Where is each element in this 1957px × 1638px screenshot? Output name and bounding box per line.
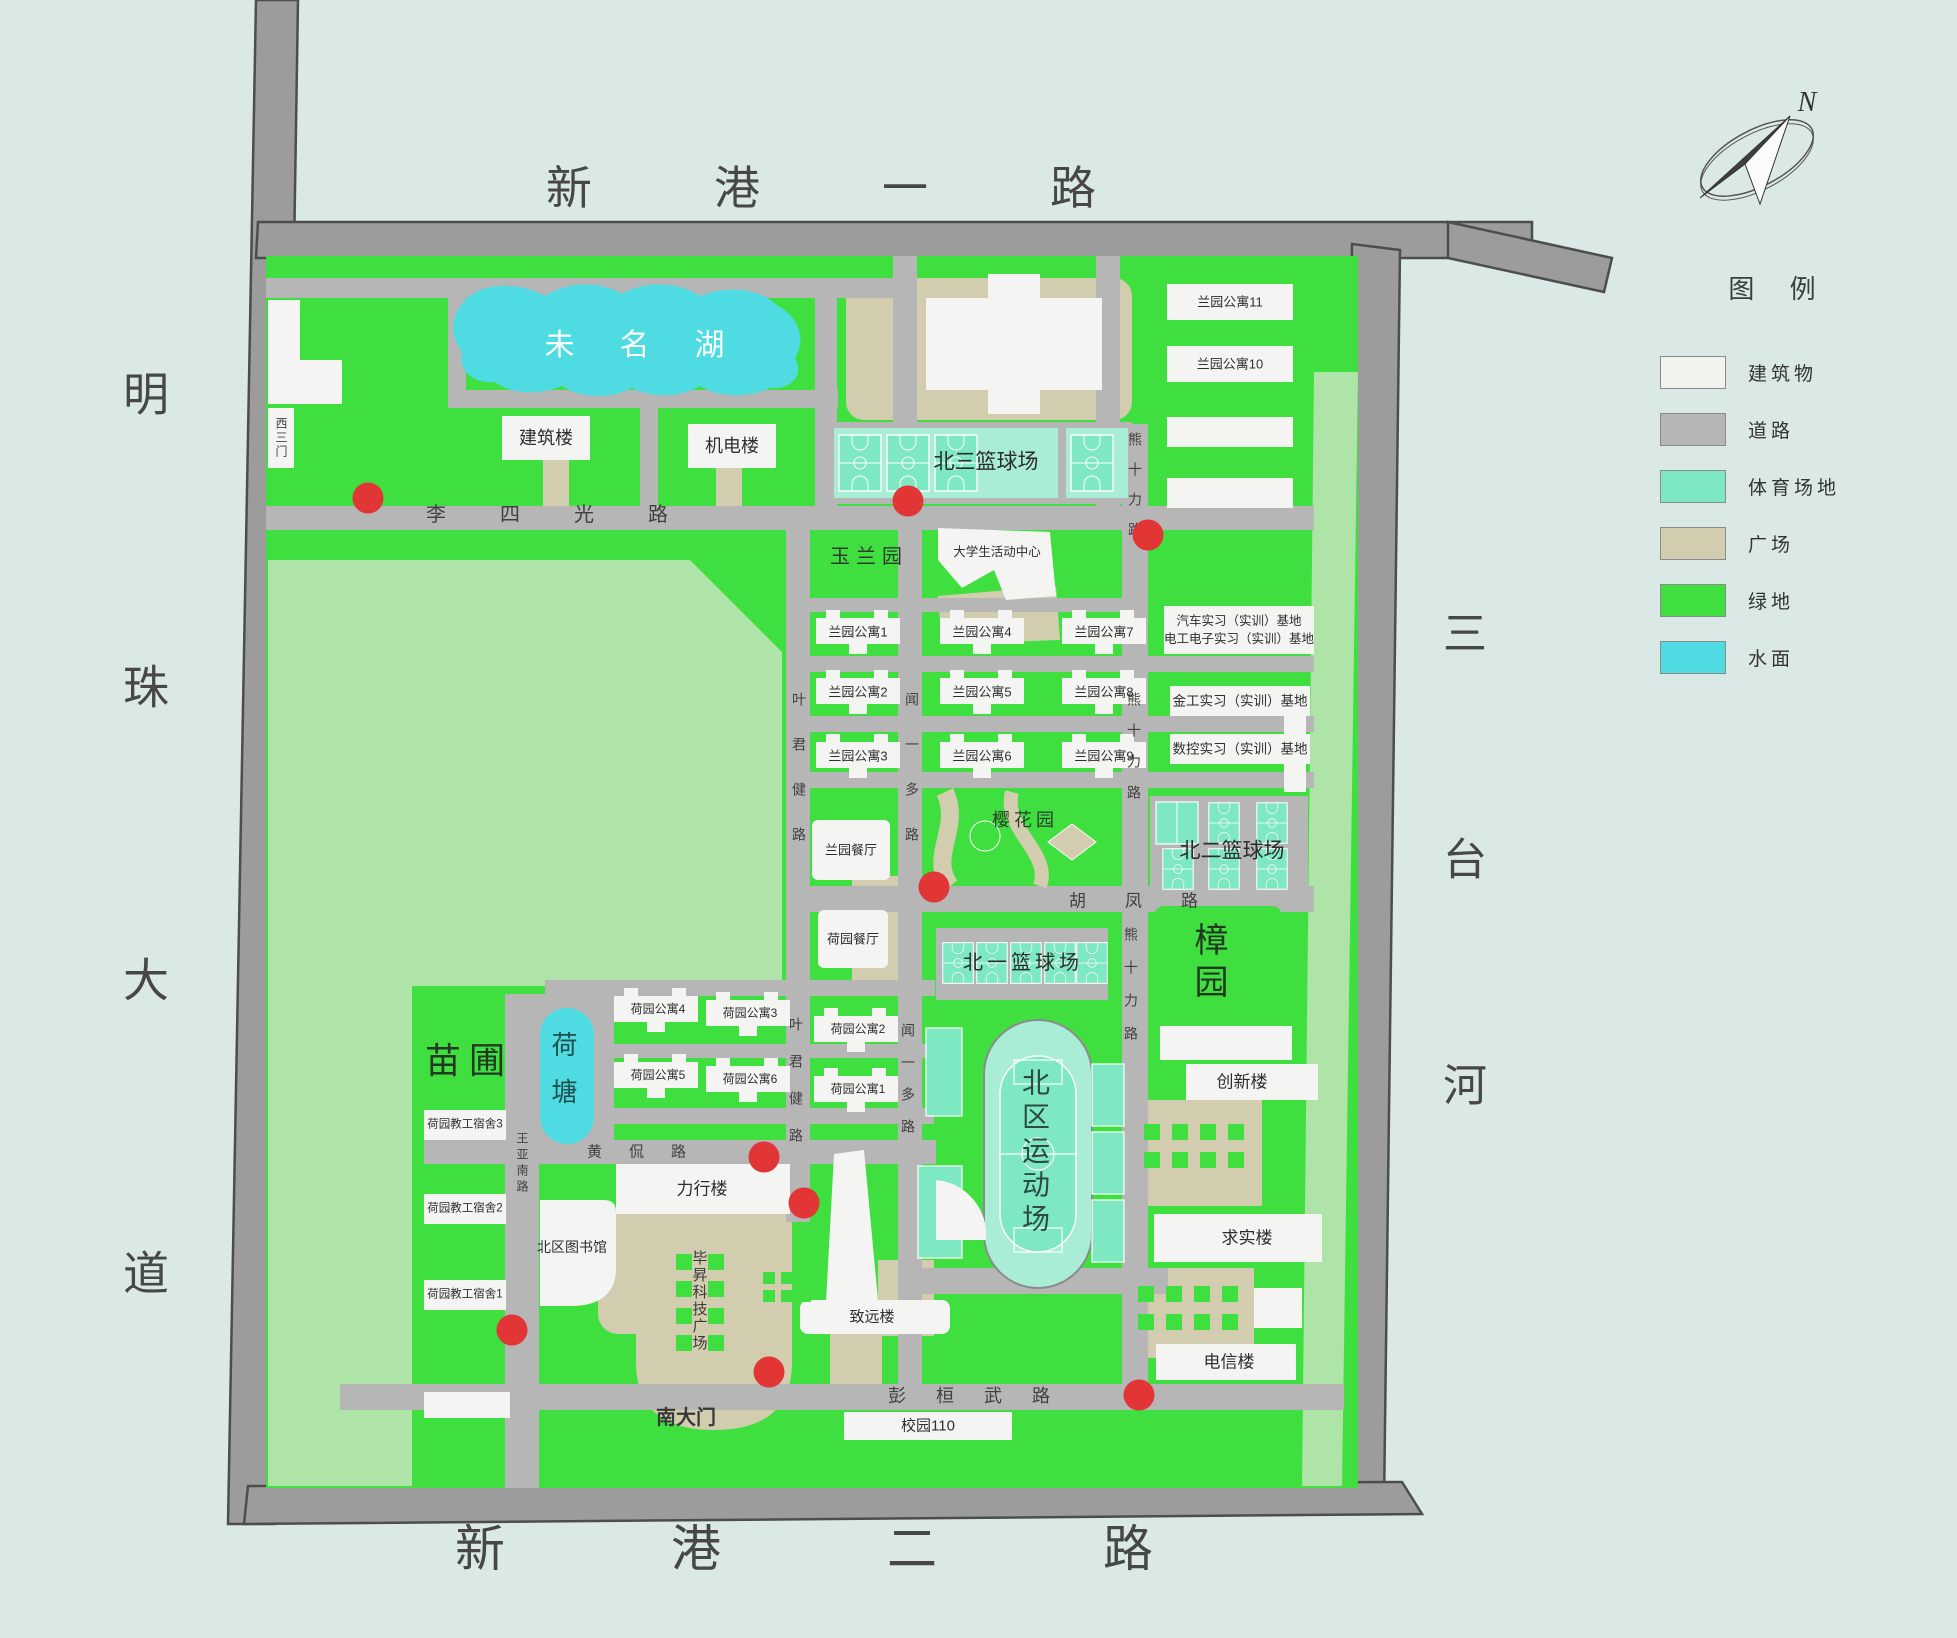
road-label-lisiguang: 李四光路 — [426, 505, 722, 525]
building-label-hy1: 荷园公寓1 — [831, 1083, 886, 1095]
marker-dot — [893, 486, 924, 517]
legend-label-green: 绿地 — [1748, 587, 1794, 614]
building-label-staff3: 荷园教工宿舍3 — [427, 1119, 502, 1131]
legend-swatch-building — [1660, 356, 1726, 389]
road-xiongshili — [1122, 424, 1148, 1406]
building-label-staff2: 荷园教工宿舍2 — [427, 1203, 502, 1215]
legend-swatch-road — [1660, 413, 1726, 446]
road-wenyiduo — [898, 506, 922, 1398]
base-auto-line: 汽车实习（实训）基地 — [1164, 612, 1314, 630]
building-label-ly6: 兰园公寓6 — [952, 750, 1011, 763]
building-label-ly9: 兰园公寓9 — [1074, 750, 1133, 763]
building-label-ly1: 兰园公寓1 — [828, 626, 887, 639]
marker-dot — [1133, 520, 1164, 551]
marker-dot — [789, 1188, 820, 1219]
campus-map: 新港一路 明珠大道 新港二路 三台河 李四光路 叶君健路 叶君健路 闻一多路 闻… — [0, 0, 1957, 1638]
building-label-ly2: 兰园公寓2 — [828, 686, 887, 699]
road-xingang-2 — [244, 1482, 1422, 1524]
road-label-xingang2: 新港二路 — [455, 1524, 1319, 1574]
marker-dot — [497, 1315, 528, 1346]
building-label-student-center: 大学生活动中心 — [953, 546, 1041, 559]
legend-item-sports: 体育场地 — [1660, 470, 1840, 503]
gate-label-south: 南大门 — [656, 1408, 716, 1428]
court-north2-label: 北二篮球场 — [1180, 841, 1285, 862]
building-label-ly4: 兰园公寓4 — [952, 626, 1011, 639]
building-label-ly7: 兰园公寓7 — [1074, 626, 1133, 639]
building-main-hall-wing — [988, 274, 1040, 414]
marker-dot — [919, 872, 950, 903]
camphor-garden-label: 樟园 — [1191, 922, 1225, 1006]
building-label-jianzhu: 建筑楼 — [519, 429, 573, 447]
legend-label-building: 建筑物 — [1748, 359, 1817, 386]
legend-item-plaza: 广场 — [1660, 527, 1840, 560]
building-label-hy2: 荷园公寓2 — [831, 1023, 886, 1035]
legend-item-building: 建筑物 — [1660, 356, 1840, 389]
base-elec-line: 电工电子实习（实训）基地 — [1164, 630, 1314, 648]
marker-dot — [1124, 1380, 1155, 1411]
legend-label-road: 道路 — [1748, 416, 1794, 443]
legend-title: 图 例 — [1728, 276, 1829, 302]
gate-label-west3: 西三门 — [275, 417, 287, 459]
building-label-qiushi: 求实楼 — [1222, 1230, 1273, 1247]
building-label-ly11: 兰园公寓11 — [1197, 296, 1263, 309]
road-label-wangyanan: 王亚南路 — [516, 1132, 528, 1196]
building-label-lixing: 力行楼 — [677, 1181, 728, 1198]
road-label-penghuanwu: 彭桓武路 — [888, 1387, 1080, 1405]
building-label-hy4: 荷园公寓4 — [631, 1003, 686, 1015]
marker-dot — [749, 1142, 780, 1173]
road-label-yejunjian-lower: 叶君健路 — [789, 1017, 803, 1165]
legend: 建筑物 道路 体育场地 广场 绿地 水面 — [1660, 356, 1840, 698]
court-north1-label: 北一篮球场 — [963, 953, 1083, 973]
marker-dot — [353, 483, 384, 514]
building-label-bisheng: 毕昇科技广场 — [692, 1250, 707, 1352]
road-label-yejunjian-upper: 叶君健路 — [792, 692, 806, 872]
pond-label: 荷塘 — [550, 1031, 576, 1125]
road-label-wenyiduo-upper: 闻一多路 — [905, 692, 919, 872]
building-label-ly5: 兰园公寓5 — [952, 686, 1011, 699]
building-label-ly3: 兰园公寓3 — [828, 750, 887, 763]
legend-swatch-water — [1660, 641, 1726, 674]
stadium-label: 北区运动场 — [1020, 1068, 1048, 1238]
legend-label-water: 水面 — [1748, 644, 1794, 671]
legend-item-green: 绿地 — [1660, 584, 1840, 617]
building-label-ly10: 兰园公寓10 — [1197, 358, 1263, 371]
marker-dot — [754, 1357, 785, 1388]
building-label-hy3: 荷园公寓3 — [723, 1007, 778, 1019]
legend-item-road: 道路 — [1660, 413, 1840, 446]
legend-swatch-green — [1660, 584, 1726, 617]
road-label-hufeng: 胡凤路 — [1069, 893, 1237, 910]
building-label-library: 北区图书馆 — [537, 1240, 607, 1254]
building-label-dianxin: 电信楼 — [1204, 1354, 1255, 1371]
nursery-label: 苗圃 — [425, 1043, 513, 1079]
road-xingang-1 — [256, 222, 1532, 258]
sakura-garden-label: 樱花园 — [992, 811, 1058, 829]
building-label-chuangxin: 创新楼 — [1217, 1074, 1268, 1091]
building-label-ly8: 兰园公寓8 — [1074, 686, 1133, 699]
legend-label-plaza: 广场 — [1748, 530, 1794, 557]
building-label-base-auto-elec: 汽车实习（实训）基地电工电子实习（实训）基地 — [1164, 612, 1314, 648]
label-campus110: 校园110 — [901, 1419, 955, 1434]
building-label-ly-canteen: 兰园餐厅 — [825, 844, 877, 857]
road-label-huangkan: 黄侃路 — [587, 1145, 713, 1160]
road-label-wenyiduo-lower: 闻一多路 — [901, 1023, 915, 1151]
lake-label: 未名湖 — [545, 331, 770, 361]
road-label-xingang1: 新港一路 — [546, 165, 1218, 211]
legend-item-water: 水面 — [1660, 641, 1840, 674]
river-label-santai: 三台河 — [1438, 610, 1482, 1288]
building-label-staff1: 荷园教工宿舍1 — [427, 1289, 502, 1301]
legend-label-sports: 体育场地 — [1748, 473, 1840, 500]
building-label-hy6: 荷园公寓6 — [723, 1073, 778, 1085]
legend-swatch-plaza — [1660, 527, 1726, 560]
building-chuangxin-a — [1160, 1026, 1292, 1060]
building-label-jidian: 机电楼 — [705, 437, 759, 455]
north-arrow-n-label: N — [1798, 89, 1817, 117]
building-label-hy-canteen: 荷园餐厅 — [827, 933, 879, 946]
court-north3-label: 北三篮球场 — [934, 452, 1039, 473]
building-label-hy5: 荷园公寓5 — [631, 1069, 686, 1081]
road-label-mingzhu: 明珠大道 — [120, 370, 166, 1542]
legend-swatch-sports — [1660, 470, 1726, 503]
building-label-base-metal: 金工实习（实训）基地 — [1173, 694, 1308, 708]
building-label-zhiyuan: 致远楼 — [849, 1310, 894, 1325]
yulan-garden-label: 玉兰园 — [830, 547, 908, 567]
north-arrow-icon — [1689, 104, 1825, 216]
road-label-xiongshili-lower: 熊十力路 — [1124, 927, 1138, 1059]
building-label-base-cnc: 数控实习（实训）基地 — [1173, 742, 1308, 756]
